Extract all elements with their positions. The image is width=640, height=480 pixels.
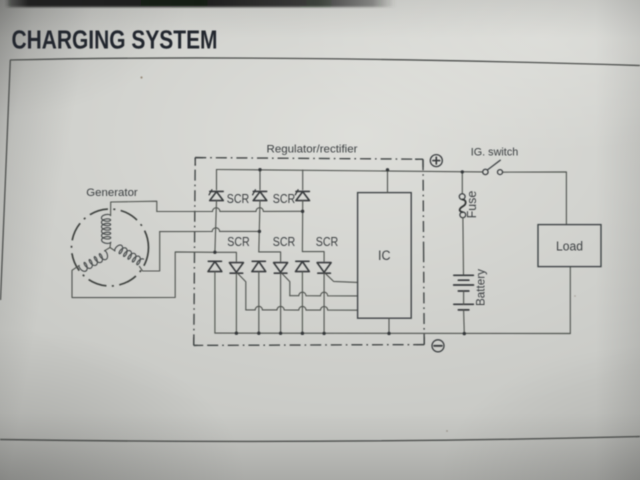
svg-text:IC: IC [378,248,391,263]
svg-text:SCR: SCR [316,234,339,249]
svg-text:SCR: SCR [273,191,296,206]
svg-text:Load: Load [556,239,583,254]
svg-text:SCR: SCR [227,234,250,249]
svg-text:Battery: Battery [474,269,488,306]
svg-text:SCR: SCR [227,191,250,206]
svg-text:Generator: Generator [86,187,138,199]
svg-text:IG. switch: IG. switch [471,147,519,159]
svg-text:Fuse: Fuse [465,191,479,219]
svg-text:Regulator/rectifier: Regulator/rectifier [267,143,358,155]
svg-text:CHARGING SYSTEM: CHARGING SYSTEM [12,27,218,55]
svg-text:SCR: SCR [273,234,296,249]
